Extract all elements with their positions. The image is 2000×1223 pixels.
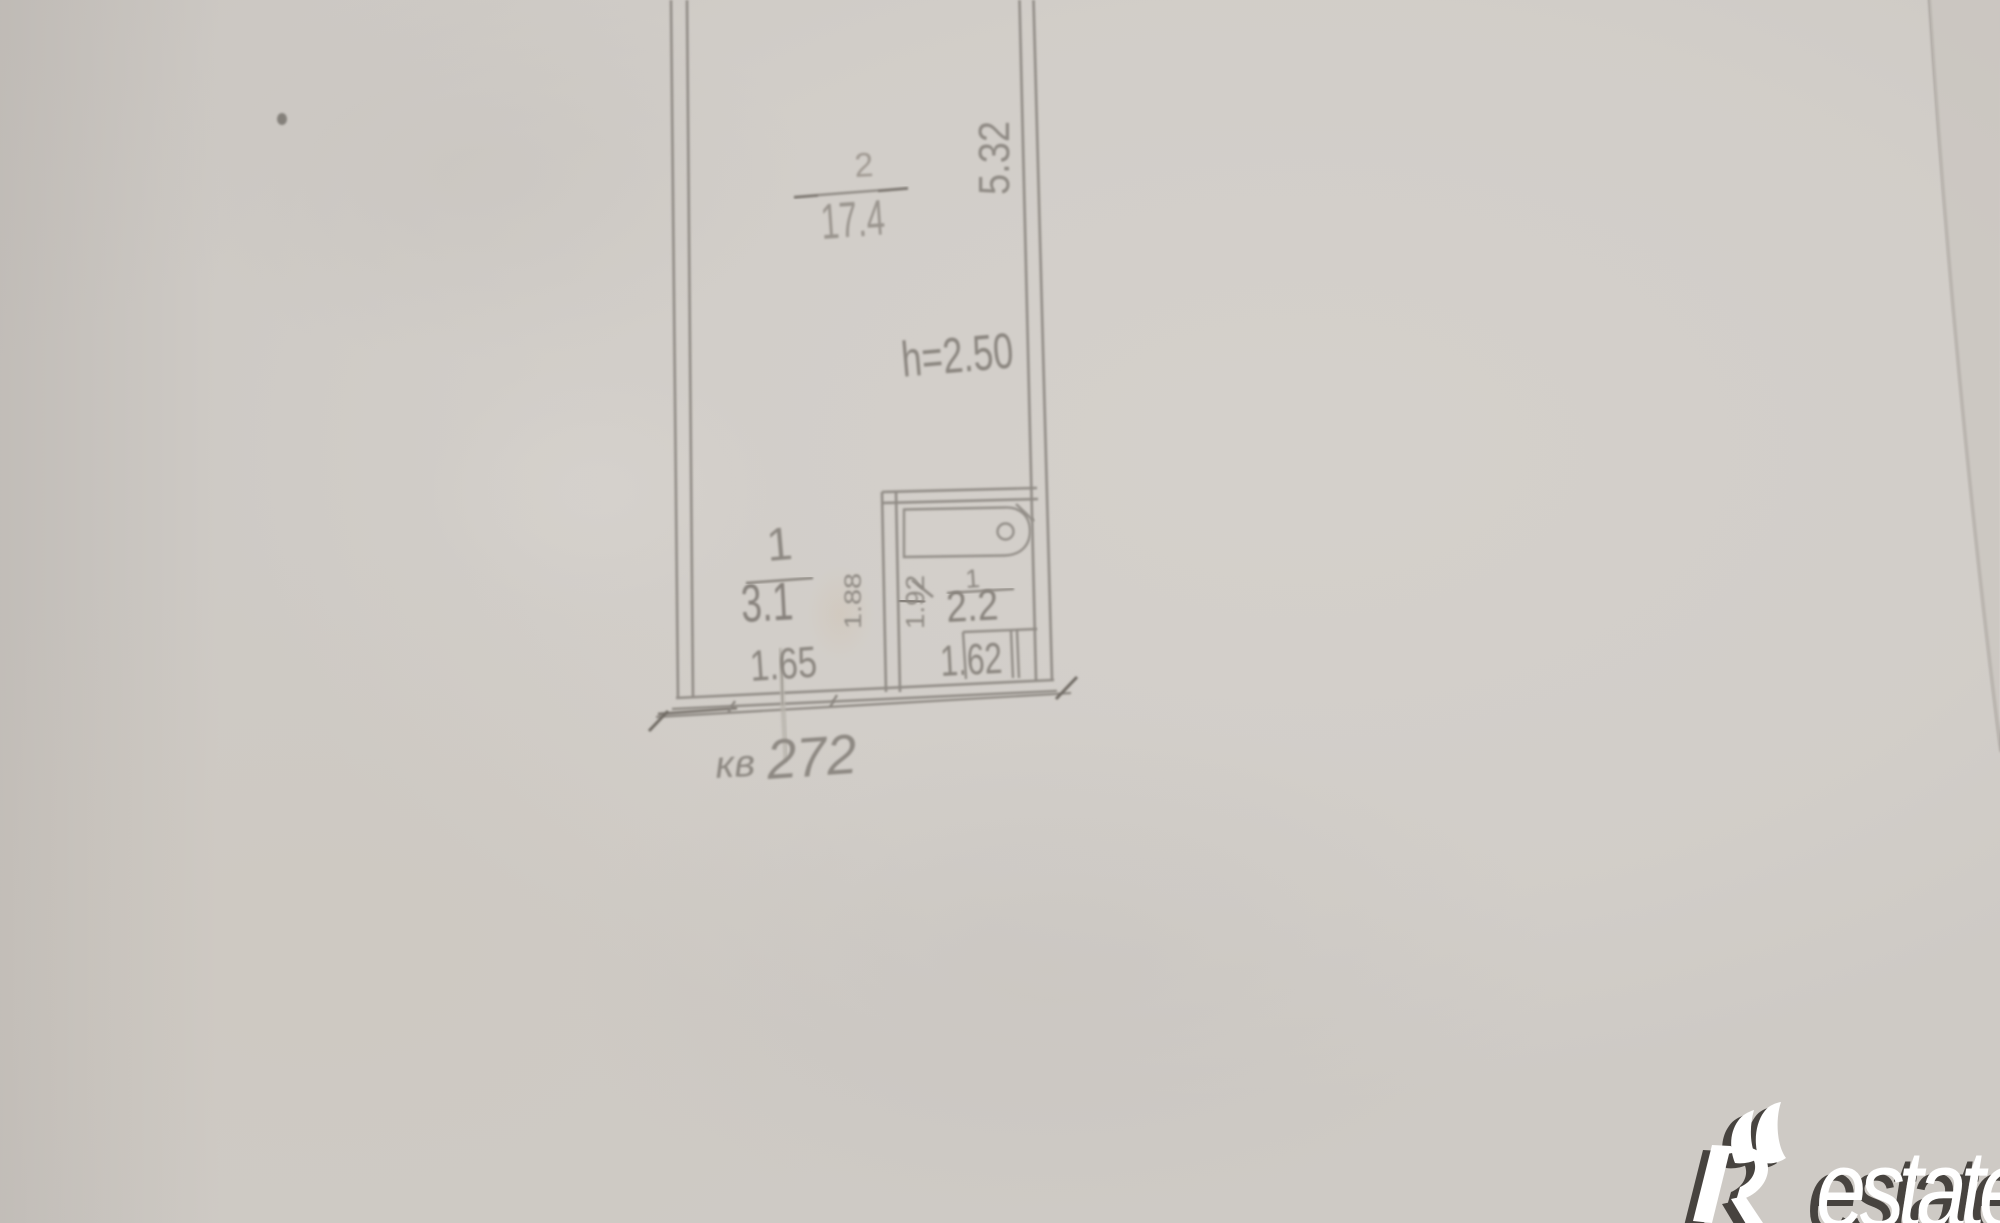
- svg-text:1.62: 1.62: [939, 634, 1003, 686]
- svg-text:h=2.50: h=2.50: [899, 322, 1015, 388]
- svg-text:272: 272: [763, 722, 858, 791]
- svg-text:кв: кв: [714, 742, 757, 787]
- svg-text:17.4: 17.4: [819, 190, 887, 250]
- svg-text:1.65: 1.65: [748, 637, 818, 691]
- svg-text:estate: estate: [1816, 1129, 2000, 1223]
- svg-text:5.32: 5.32: [970, 121, 1019, 195]
- svg-text:1.92: 1.92: [900, 575, 930, 629]
- svg-text:2.2: 2.2: [945, 580, 999, 632]
- svg-text:1.88: 1.88: [840, 573, 867, 629]
- svg-text:1: 1: [764, 517, 794, 571]
- svg-text:3.1: 3.1: [739, 571, 794, 634]
- svg-text:2: 2: [853, 146, 874, 185]
